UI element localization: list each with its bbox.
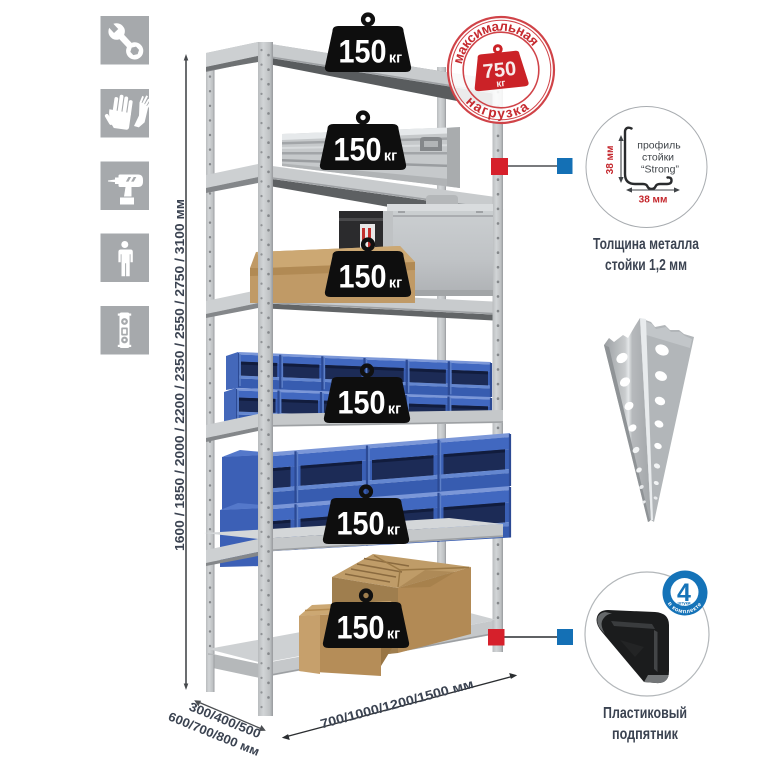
svg-text:Толщина металла: Толщина металла xyxy=(593,236,699,253)
svg-text:“Strong”: “Strong” xyxy=(641,164,679,176)
svg-text:1600 / 1850 / 2000 / 2200 / 23: 1600 / 1850 / 2000 / 2200 / 2350 / 2550 … xyxy=(172,199,187,551)
svg-text:38 мм: 38 мм xyxy=(605,146,616,175)
svg-text:стойки 1,2 мм: стойки 1,2 мм xyxy=(605,257,687,274)
svg-text:штуки: штуки xyxy=(678,601,691,606)
svg-text:Пластиковый: Пластиковый xyxy=(603,705,687,722)
svg-text:стойки: стойки xyxy=(642,152,674,164)
svg-text:38 мм: 38 мм xyxy=(639,195,668,206)
svg-text:профиль: профиль xyxy=(637,140,681,152)
svg-text:подпятник: подпятник xyxy=(612,726,679,743)
svg-text:кг: кг xyxy=(496,78,506,90)
